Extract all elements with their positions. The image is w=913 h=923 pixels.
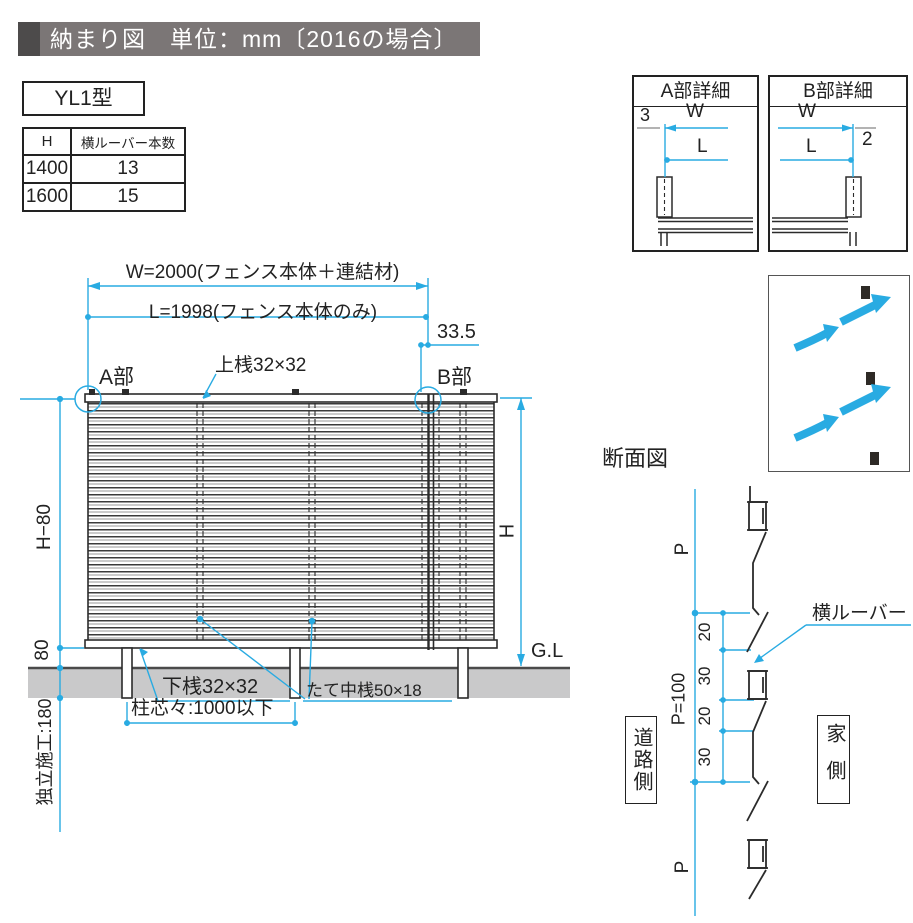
dim-80-label: 80 bbox=[32, 639, 54, 660]
post-pitch-label: 柱芯々:1000以下 bbox=[131, 693, 274, 720]
spec-table: H 横ルーバー本数 1400 13 1600 15 bbox=[22, 127, 186, 212]
louver-callout-label: 横ルーバー bbox=[812, 598, 907, 625]
spec-count-value: 13 bbox=[71, 155, 185, 183]
louver-profiles bbox=[747, 486, 768, 899]
table-row: 1600 15 bbox=[23, 183, 185, 211]
spec-count-value: 15 bbox=[71, 183, 185, 211]
louver-photo bbox=[768, 275, 910, 472]
road-side-box: 道路側 bbox=[625, 716, 657, 804]
detail-a-dim-l: L bbox=[697, 136, 708, 158]
label-a-part: A部 bbox=[99, 361, 134, 391]
dim-h-label: H bbox=[497, 524, 520, 538]
detail-b-dim-w: W bbox=[798, 101, 816, 123]
rail-clips bbox=[89, 389, 467, 395]
louver-slats-image bbox=[768, 275, 910, 472]
section-dim-20b: 20 bbox=[695, 707, 715, 726]
table-row: 1400 13 bbox=[23, 155, 185, 183]
page-title: 納まり図 単位：mm〔2016の場合〕 bbox=[40, 22, 480, 56]
section-dim-p-top: P bbox=[672, 543, 694, 556]
detail-a-dim-w: W bbox=[686, 101, 704, 123]
detail-b-dim-l: L bbox=[806, 136, 817, 158]
drawing-sheet: 納まり図 単位：mm〔2016の場合〕 YL1型 H 横ルーバー本数 1400 … bbox=[0, 0, 913, 923]
model-name-box: YL1型 bbox=[22, 81, 145, 116]
top-rail-label: 上桟32×32 bbox=[215, 350, 306, 377]
detail-b-title: B部詳細 bbox=[770, 77, 906, 107]
detail-a-dim-3: 3 bbox=[640, 105, 650, 126]
detail-b-dim-2: 2 bbox=[862, 129, 873, 151]
ground-band bbox=[28, 668, 570, 698]
dim-l-label: L=1998(フェンス本体のみ) bbox=[100, 297, 426, 324]
section-dim-p-bottom: P bbox=[672, 861, 694, 874]
louver-clip bbox=[861, 286, 870, 299]
title-bar: 納まり図 単位：mm〔2016の場合〕 bbox=[18, 22, 480, 56]
title-accent-square bbox=[18, 22, 40, 56]
section-dim-30a: 30 bbox=[695, 667, 715, 686]
louver-clip bbox=[870, 452, 879, 465]
spec-table-header-row: H 横ルーバー本数 bbox=[23, 128, 185, 155]
spec-h-value: 1600 bbox=[23, 183, 71, 211]
dim-w-label: W=2000(フェンス本体＋連結材) bbox=[95, 257, 430, 284]
ground-level-label: G.L bbox=[531, 640, 563, 663]
fence-louver-panel bbox=[88, 403, 494, 640]
vertical-rail-label: たて中桟50×18 bbox=[306, 676, 422, 701]
section-dim-20a: 20 bbox=[695, 623, 715, 642]
louver-clip bbox=[866, 372, 875, 385]
section-lines bbox=[690, 486, 911, 916]
detail-b-box: B部詳細 bbox=[768, 75, 908, 252]
section-dim-30b: 30 bbox=[695, 748, 715, 767]
house-side-box: 家側 bbox=[817, 715, 850, 804]
dim-h-minus-80-label: H−80 bbox=[34, 504, 56, 550]
section-dim-p100: P=100 bbox=[669, 673, 690, 726]
spec-header-h: H bbox=[23, 128, 71, 155]
dim-33-5-label: 33.5 bbox=[437, 321, 476, 344]
spec-h-value: 1400 bbox=[23, 155, 71, 183]
section-title: 断面図 bbox=[602, 441, 668, 473]
label-b-part: B部 bbox=[437, 361, 472, 391]
dim-foundation-label: 独立施工:180 bbox=[31, 698, 57, 805]
spec-header-louver-count: 横ルーバー本数 bbox=[71, 128, 185, 155]
